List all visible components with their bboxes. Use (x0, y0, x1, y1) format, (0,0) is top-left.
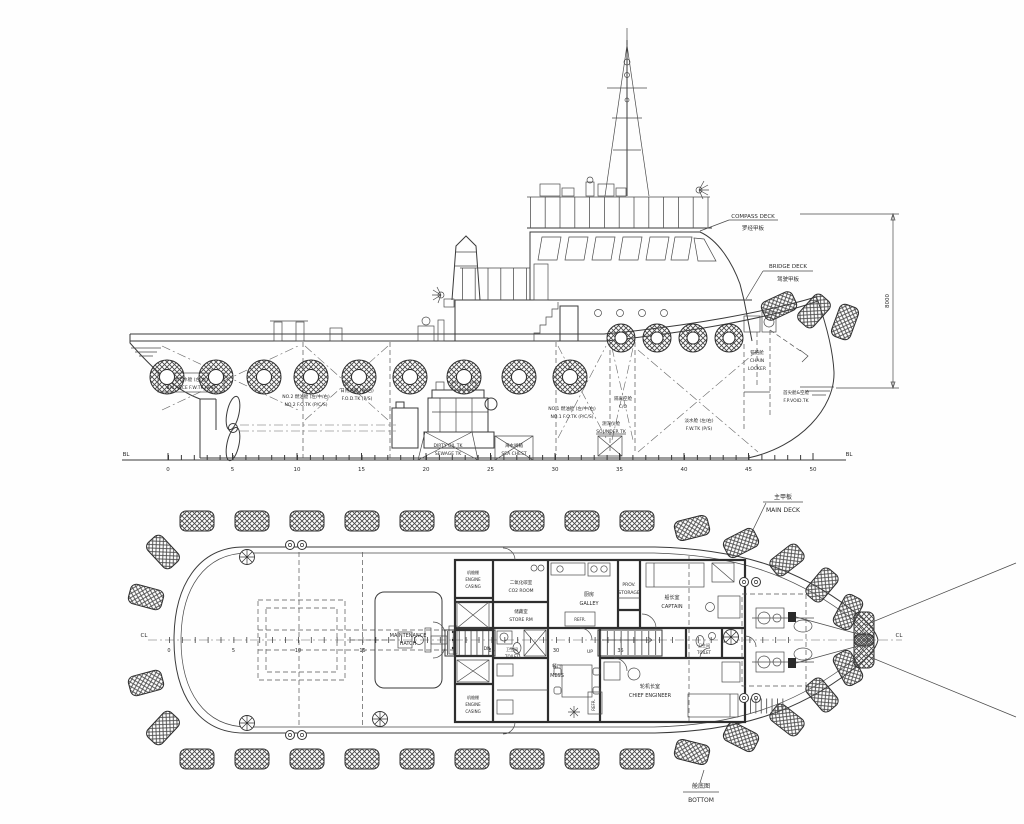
frame-tick: 45 (745, 467, 752, 473)
main-deck-label-zh: 主甲板 (774, 493, 792, 501)
stairs-up-label: UP (587, 649, 593, 655)
maintenance-hatch-l2: HATCH (400, 641, 417, 647)
hull-tire-fenders (150, 290, 860, 394)
deck-plan-view: CL CL 0 5 10 15 25 30 35 (127, 493, 1016, 804)
baseline-label-left: BL (123, 452, 131, 458)
tire-fender (447, 360, 481, 394)
mess-zh: 餐厅 (552, 663, 562, 670)
plan-frame-tick: 0 (167, 648, 170, 654)
chain-locker-en1: CHAIN (750, 358, 764, 364)
plan-frame-tick: 35 (617, 648, 623, 654)
plan-frame-tick: 5 (232, 648, 235, 654)
cofferdam-zh: 隔离空舱 (614, 395, 632, 402)
deckhouse-plan: DN UP REFR. (433, 548, 756, 734)
engine-casing-bottom-en2: CASING (465, 709, 480, 714)
mess-en: MESS (550, 673, 564, 679)
frame-tick: 40 (681, 467, 688, 473)
plan-centerline: CL CL 0 5 10 15 25 30 35 (141, 552, 904, 728)
prov-storage-l2: STORAGE (618, 590, 640, 596)
frame-tick: 25 (487, 467, 494, 473)
compass-deck-label-zh: 罗经甲板 (742, 224, 765, 232)
sea-chest-zh: 海水阀箱 (505, 442, 523, 449)
maintenance-hatch-l1: MAINTENANCE (390, 633, 427, 639)
sounder-zh: 测深仪舱 (602, 420, 620, 427)
dim-8000: 8000 (885, 294, 891, 308)
dirty-oil-l1: DIRTY OIL TK (433, 443, 463, 449)
co2-room-zh: 二氧化碳室 (510, 579, 533, 586)
profile-scale-ruler: BL BL 0 5 10 15 20 25 30 35 40 45 50 (122, 452, 853, 473)
tire-fender (247, 360, 281, 394)
fod-en: F.O.D.TK (P/S) (342, 396, 373, 402)
galley-en: GALLEY (579, 601, 599, 607)
frame-tick: 5 (231, 467, 235, 473)
engine-casing-bottom-zh: 机舱棚 (467, 694, 479, 700)
prov-storage-l1: PROV. (622, 582, 635, 588)
stairs-dn-label: DN (484, 646, 491, 652)
chief-engineer-en: CHIEF ENGINEER (629, 693, 672, 699)
fp-void-zh: 首尖舱&空舱 (783, 389, 810, 396)
tire-fender (679, 324, 707, 352)
sea-chest-en: SEA CHEST (501, 451, 526, 457)
fod-zh: 日用油舱 (左/右) (340, 387, 374, 394)
chief-engineer-zh: 轮机长室 (640, 683, 660, 690)
drawing-canvas: BL BL 0 5 10 15 20 25 30 35 40 45 50 800… (0, 0, 1024, 824)
frame-tick: 20 (423, 467, 430, 473)
bottom-label-en: BOTTOM (688, 797, 714, 804)
fw-tk-en: F.W.TK (P/S) (686, 426, 713, 432)
fp-void-en: F.P.VOID.TK (783, 398, 809, 404)
tire-fender (715, 324, 743, 352)
vent-fan (724, 630, 739, 645)
frame-tick: 35 (616, 467, 623, 473)
frame-tick: 15 (358, 467, 365, 473)
tire-fender (643, 324, 671, 352)
balance-fw-zh: 调节水舱 (左/右) (174, 376, 208, 383)
tire-fender (294, 360, 328, 394)
centerline-label-left: CL (141, 633, 149, 639)
toilet-left-zh: 卫生间 (506, 646, 518, 652)
bridge-deck-label-zh: 驾驶甲板 (777, 275, 800, 283)
engine-casing-top-en2: CASING (465, 584, 480, 589)
toilet-right-zh: 卫生间 (698, 642, 710, 648)
tire-fender (393, 360, 427, 394)
store-room-zh: 储藏室 (514, 608, 528, 615)
no2-fo-en: NO.2 F.O.TK (P/C/S) (285, 402, 328, 408)
engine-casing-top-en1: ENGINE (465, 577, 481, 582)
captain-zh: 船长室 (664, 594, 679, 601)
main-deck-label-en: MAIN DECK (766, 507, 801, 514)
frame-tick: 50 (810, 467, 817, 473)
aft-deck-fittings (270, 317, 444, 341)
frame-tick: 0 (166, 467, 170, 473)
refrigerator-label-2: REFR. (591, 699, 596, 711)
chain-locker-en2: LOCKER (748, 366, 766, 372)
windlass-profile (744, 312, 808, 388)
baseline-label-right: BL (846, 452, 854, 458)
profile-view: BL BL 0 5 10 15 20 25 30 35 40 45 50 800… (122, 28, 899, 473)
bottom-label-zh: 舱底图 (692, 782, 710, 790)
bridge-deck-label-en: BRIDGE DECK (769, 264, 807, 270)
toilet-left-en: TOILET (504, 654, 520, 659)
compass-deck-label-en: COMPASS DECK (731, 214, 775, 220)
general-arrangement-drawing: BL BL 0 5 10 15 20 25 30 35 40 45 50 800… (0, 0, 1024, 824)
co2-room-en: CO2 ROOM (508, 588, 533, 594)
bow-fender (759, 290, 798, 322)
no2-fo-zh: NO.2 燃油舱 (左/中/右) (282, 393, 330, 400)
bow-fender (795, 292, 833, 331)
chain-locker-zh: 锚链舱 (750, 349, 764, 356)
toilet-right-en: TOILET (696, 650, 712, 655)
wheelhouse (455, 232, 752, 300)
fw-tk-zh: 淡水舱 (左/右) (685, 417, 714, 424)
dirty-oil-l2: SEWAGE TK (435, 451, 462, 457)
engine-casing-top-zh: 机舱棚 (467, 569, 479, 575)
no1-fo-zh: NO.1 燃油舱 (左/中/右) (548, 405, 596, 412)
tire-fender (553, 360, 587, 394)
hull-profile (130, 297, 834, 458)
frame-tick: 30 (552, 467, 559, 473)
balance-fw-en: BALANCE F.W.TK (P/S) (166, 385, 215, 391)
bow-fender (830, 303, 860, 342)
plan-frame-tick: 10 (295, 648, 301, 654)
funnel (432, 236, 480, 307)
refrigerator-label: REFR. (574, 617, 586, 622)
centerline-label-right: CL (896, 633, 904, 639)
galley-zh: 厨房 (584, 591, 594, 598)
waterline-marks (131, 348, 834, 395)
compass-deck (527, 28, 712, 228)
tire-fender (502, 360, 536, 394)
no1-fo-en: NO.1 F.O.TK (P/C/S) (551, 414, 594, 420)
frame-tick: 10 (294, 467, 301, 473)
engine-casing-bottom-en1: ENGINE (465, 702, 481, 707)
captain-en: CAPTAIN (661, 604, 682, 610)
plan-frame-tick: 30 (553, 648, 559, 654)
store-room-en: STORE RM (509, 617, 533, 623)
tire-fender (607, 324, 635, 352)
cofferdam-en: C/O (619, 404, 628, 410)
